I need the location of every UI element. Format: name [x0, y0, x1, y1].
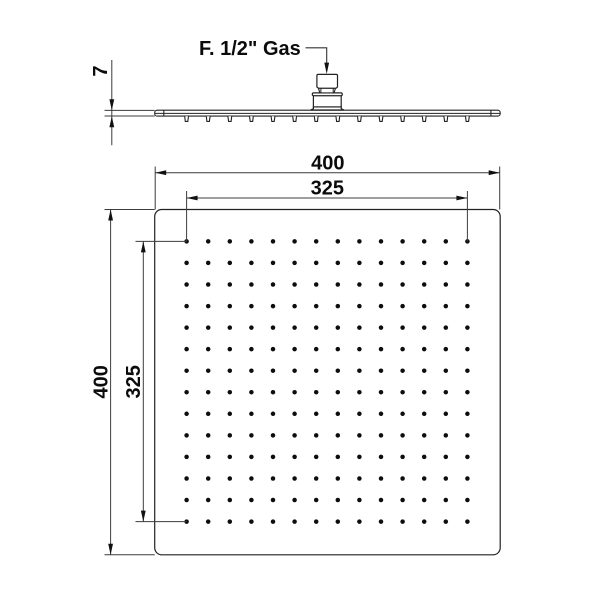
svg-text:400: 400 [311, 152, 344, 174]
svg-text:400: 400 [90, 365, 112, 398]
svg-text:7: 7 [90, 65, 112, 76]
svg-text:F. 1/2" Gas: F. 1/2" Gas [199, 38, 301, 60]
svg-text:325: 325 [311, 178, 344, 200]
svg-text:325: 325 [123, 365, 145, 398]
